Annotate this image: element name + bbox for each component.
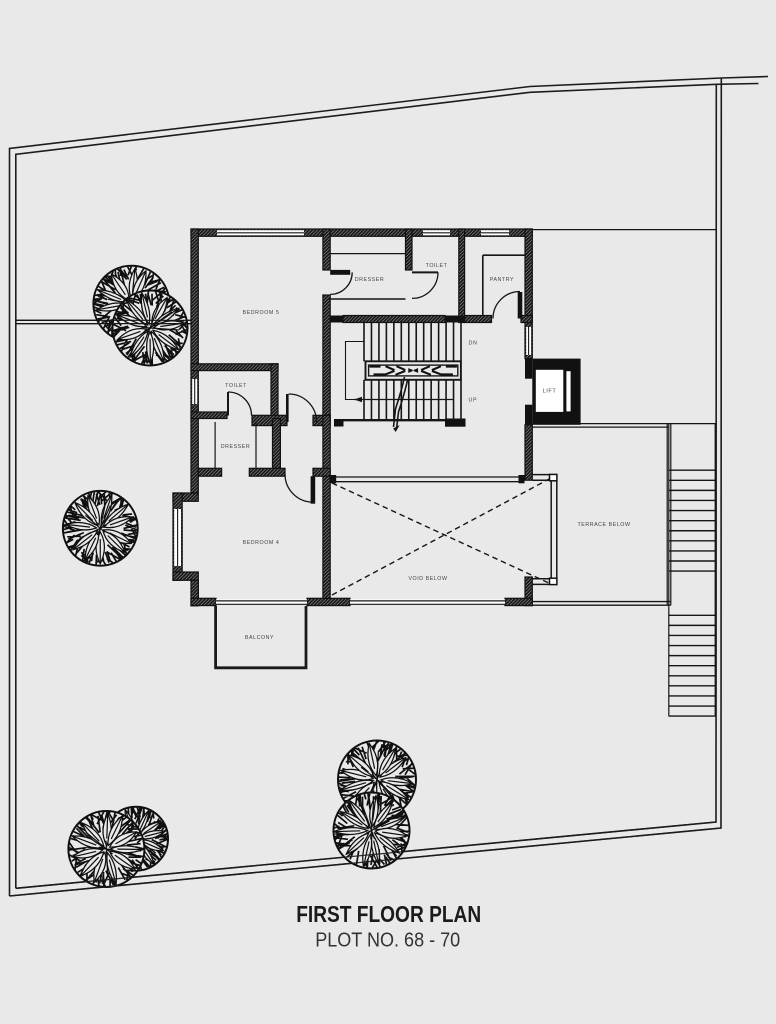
svg-text:PANTRY: PANTRY [490,277,514,283]
svg-text:DN: DN [469,340,478,346]
svg-text:VOID BELOW: VOID BELOW [408,576,447,582]
svg-text:TERRACE BELOW: TERRACE BELOW [577,522,630,528]
svg-text:BEDROOM 5: BEDROOM 5 [243,310,280,316]
svg-text:BEDROOM 4: BEDROOM 4 [243,540,280,546]
svg-text:UP: UP [469,397,478,403]
svg-text:TOILET: TOILET [426,263,448,269]
svg-text:DRESSER: DRESSER [355,277,384,283]
svg-text:DRESSER: DRESSER [221,444,250,450]
svg-text:BALCONY: BALCONY [245,635,274,641]
svg-text:PLOT NO. 68 - 70: PLOT NO. 68 - 70 [315,930,460,952]
svg-text:FIRST FLOOR PLAN: FIRST FLOOR PLAN [296,901,481,927]
svg-text:LIFT: LIFT [543,389,557,395]
svg-text:TOILET: TOILET [225,383,247,389]
